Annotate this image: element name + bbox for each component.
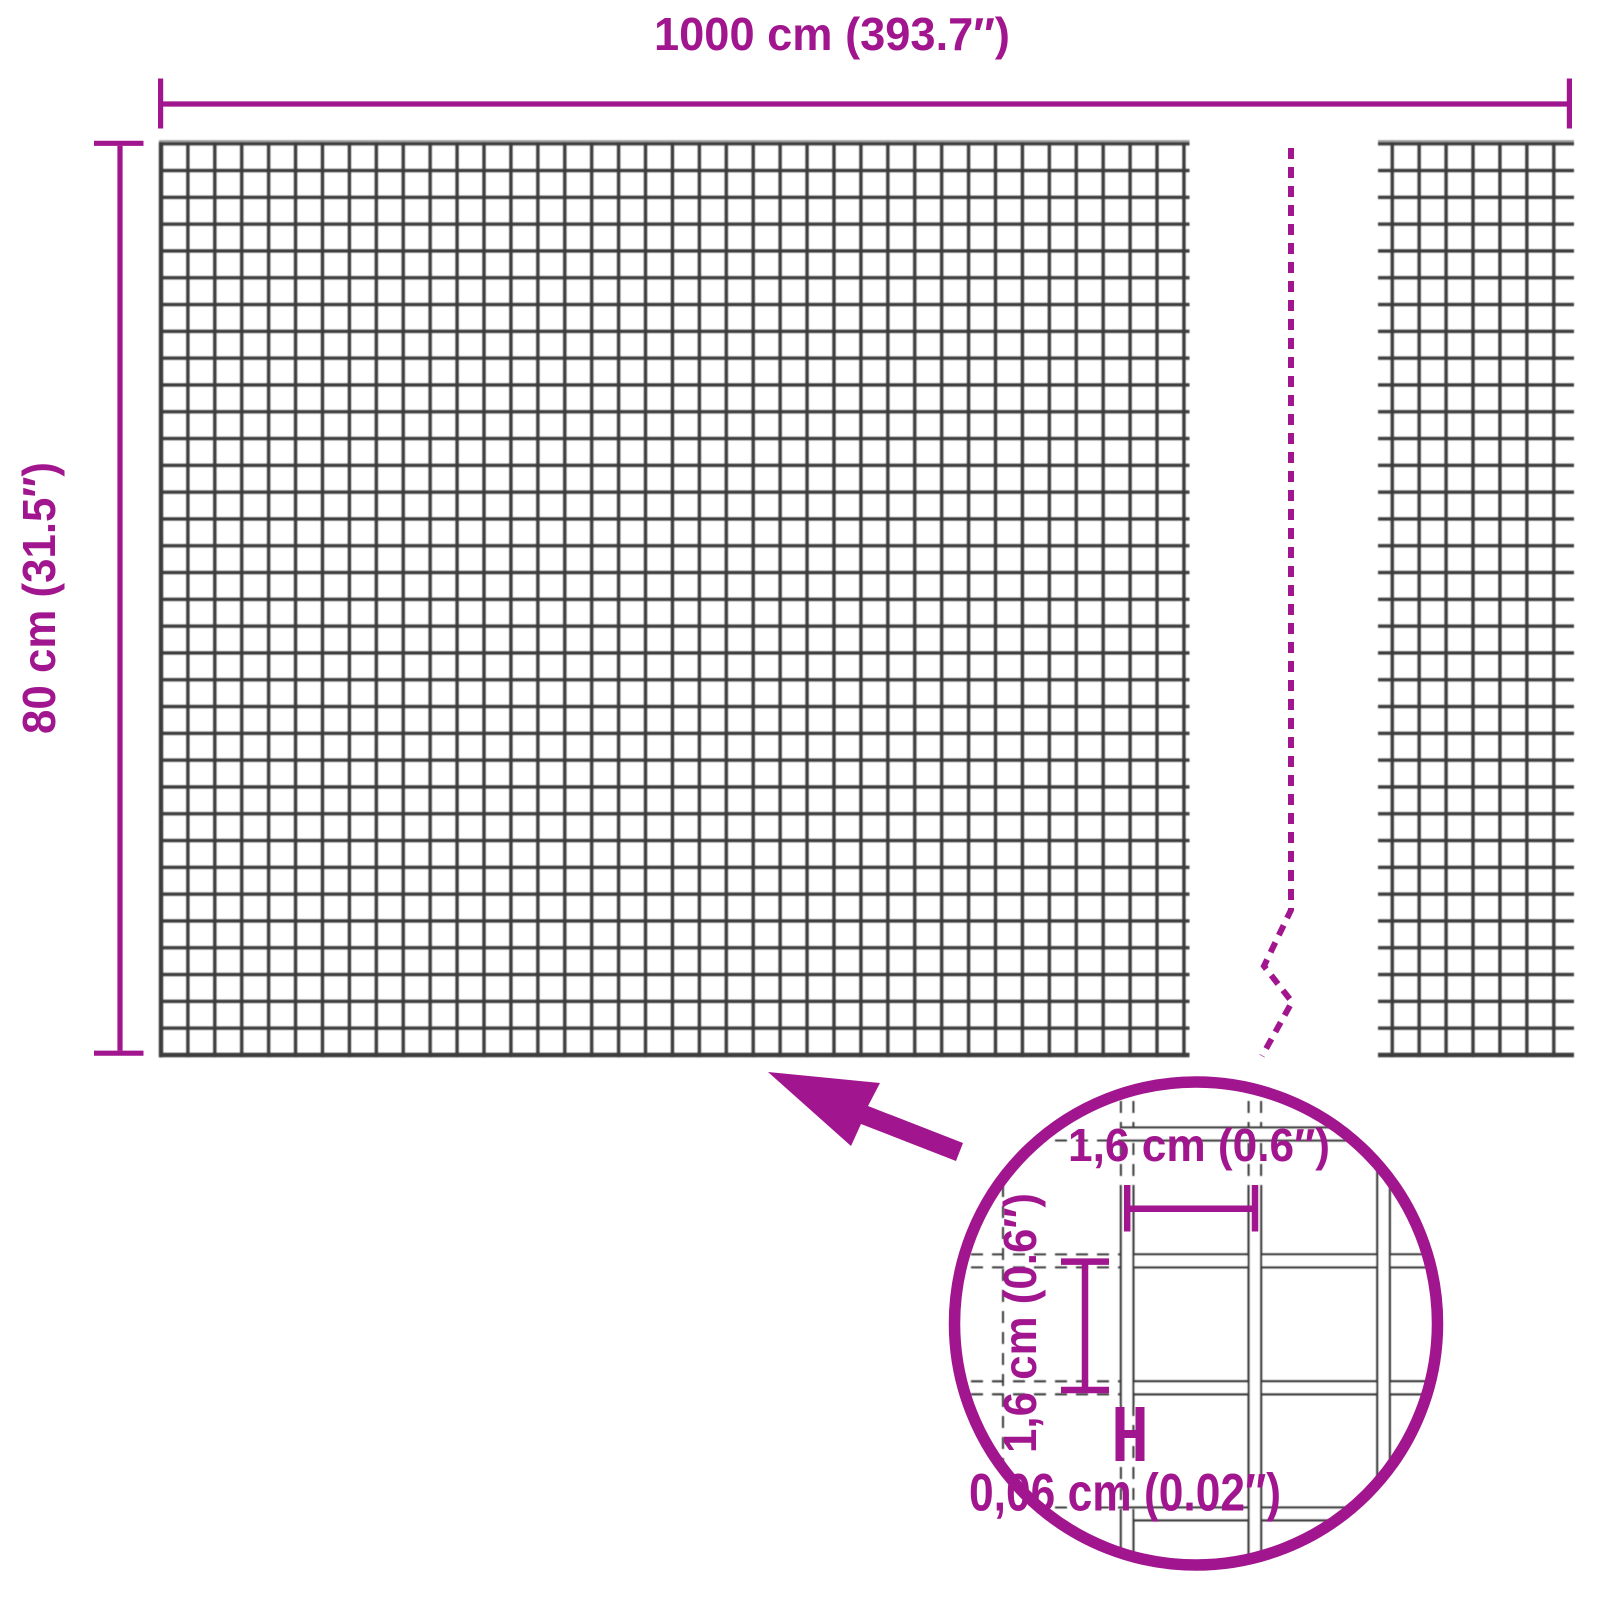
svg-text:1000 cm (393.7″): 1000 cm (393.7″) — [654, 8, 1010, 60]
svg-text:1,6 cm (0.6″): 1,6 cm (0.6″) — [994, 1193, 1046, 1453]
svg-text:0,06 cm (0.02″): 0,06 cm (0.02″) — [969, 1464, 1281, 1523]
svg-text:1,6 cm (0.6″): 1,6 cm (0.6″) — [1068, 1119, 1330, 1171]
svg-text:80 cm (31.5″): 80 cm (31.5″) — [13, 462, 65, 734]
